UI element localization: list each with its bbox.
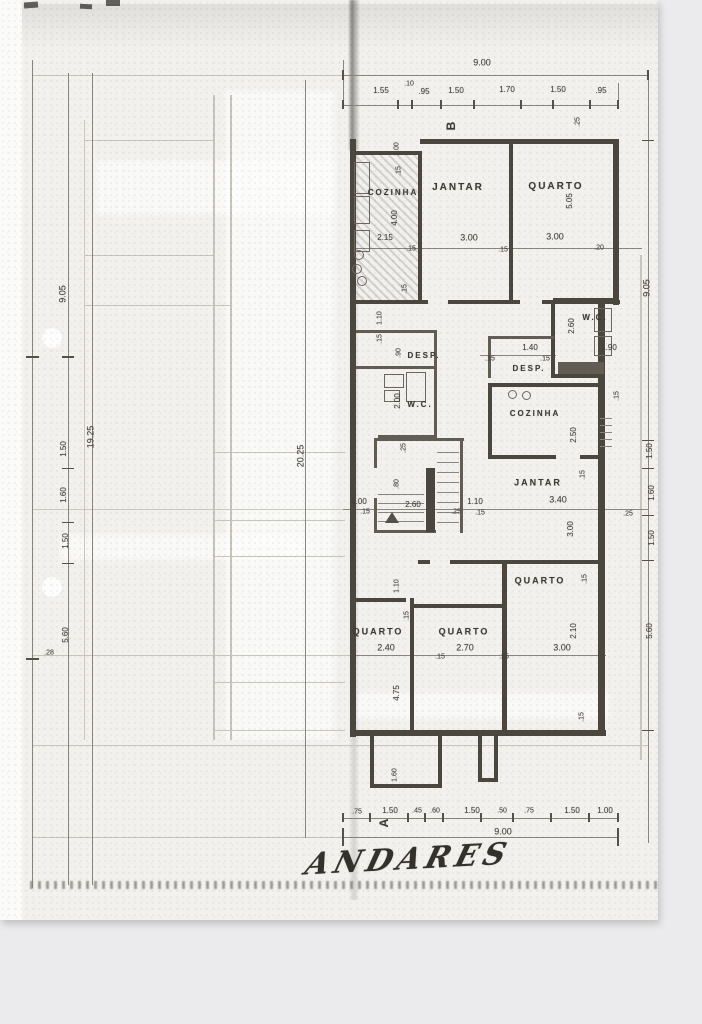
- tick-mark: [588, 813, 590, 822]
- dim-label: 5.60: [646, 623, 654, 639]
- scan-artifact: [22, 4, 658, 50]
- fixture: [437, 482, 459, 483]
- dim-label: 3.00: [553, 644, 571, 653]
- dim-label: .10: [404, 81, 414, 88]
- fixture: [600, 432, 612, 433]
- tick-mark: [642, 515, 654, 516]
- dim-label: 9.00: [473, 59, 491, 68]
- dim-label: .75: [524, 808, 534, 815]
- faint-line: [640, 255, 642, 760]
- wall-segment: [370, 784, 442, 788]
- dim-label: .15: [404, 611, 411, 621]
- dim-label: .25: [575, 117, 582, 127]
- kitchen-bench: [558, 362, 604, 374]
- stove-burner: [354, 250, 364, 260]
- tick-mark: [407, 813, 409, 822]
- dim-label: .15: [579, 712, 586, 722]
- tick-mark: [440, 100, 442, 109]
- hole-punch: [41, 327, 63, 349]
- dim-label: 9.00: [494, 828, 512, 837]
- dim-label: 2.10: [570, 623, 578, 639]
- dim-label: 1.50: [550, 86, 566, 94]
- bathtub: [406, 372, 426, 402]
- faint-line: [84, 255, 214, 256]
- tick-mark: [520, 100, 522, 109]
- fixture: [437, 452, 459, 453]
- wall-segment: [414, 604, 504, 608]
- kitchen-counter: [354, 230, 370, 252]
- fixture: [600, 418, 612, 419]
- dim-label: .15: [498, 247, 508, 254]
- dim-label: 1.55: [373, 87, 389, 95]
- dim-label: 2.60: [405, 501, 421, 509]
- wall-segment: [420, 139, 619, 144]
- faint-line: [32, 837, 343, 838]
- tick-mark: [26, 658, 39, 660]
- dim-label: .50: [497, 808, 507, 815]
- wall-segment: [551, 374, 605, 378]
- tick-mark: [342, 813, 344, 822]
- wall-segment: [438, 734, 442, 788]
- dim-label: .15: [402, 284, 409, 294]
- room-label-jantar-mid: JANTAR: [514, 479, 562, 488]
- dim-label: 19.25: [87, 426, 96, 449]
- wall-segment: [356, 366, 436, 369]
- wall-segment: [551, 302, 555, 378]
- dimension-line: [32, 60, 33, 888]
- room-label-jantar-top: JANTAR: [432, 183, 484, 193]
- faint-line: [32, 655, 350, 656]
- dim-label: .20: [594, 245, 604, 252]
- dim-label: .95: [595, 87, 606, 95]
- dim-label: .25: [401, 443, 408, 453]
- dim-label: 2.60: [568, 318, 576, 334]
- room-label-quarto-bottom-mid: QUARTO: [439, 628, 490, 637]
- dim-label: 1.50: [646, 443, 654, 459]
- dim-label: 1.50: [464, 807, 480, 815]
- dim-label: 1.50: [564, 807, 580, 815]
- dim-label: 2.15: [377, 234, 393, 242]
- tick-mark: [62, 522, 74, 523]
- tick-mark: [480, 813, 482, 822]
- fixture: [437, 522, 459, 523]
- tick-mark: [552, 100, 554, 109]
- tick-mark: [62, 468, 74, 469]
- scan-artifact: [106, 0, 120, 6]
- tick-mark: [642, 560, 654, 561]
- dim-label: 3.00: [567, 521, 575, 537]
- wall-segment: [488, 336, 554, 339]
- wall-segment: [478, 734, 482, 782]
- stove-burner: [508, 390, 517, 399]
- tick-mark: [617, 100, 619, 109]
- tick-mark: [442, 813, 444, 822]
- fixture: [426, 468, 435, 532]
- faint-line: [215, 452, 345, 453]
- dim-label: 20.25: [297, 445, 306, 468]
- faint-line: [32, 75, 343, 76]
- wall-segment: [613, 139, 619, 305]
- dim-label: 3.00: [460, 234, 478, 243]
- faint-line: [230, 95, 232, 740]
- tick-mark: [642, 468, 654, 469]
- stair-direction-arrow: [385, 512, 399, 523]
- wall-segment: [378, 435, 437, 438]
- wall-segment: [356, 330, 436, 333]
- wall-segment: [434, 330, 437, 438]
- dim-label: 4.75: [393, 685, 401, 701]
- dim-label: .15: [475, 510, 485, 517]
- dim-label: 1.90: [601, 344, 617, 352]
- wall-segment: [350, 139, 356, 737]
- tick-mark: [62, 356, 74, 358]
- tick-mark: [26, 356, 39, 358]
- stove-burner: [352, 264, 362, 274]
- dim-label: 9.05: [643, 279, 652, 297]
- faint-line: [32, 509, 343, 510]
- dim-label: 1.60: [648, 485, 656, 501]
- dim-label: 2.70: [456, 644, 474, 653]
- fixture: [437, 492, 459, 493]
- dim-label: 3.40: [549, 496, 567, 505]
- dim-label: .60: [430, 808, 440, 815]
- dim-label: .15: [377, 334, 384, 344]
- scan-artifact: [95, 160, 335, 215]
- dim-label: 1.50: [448, 87, 464, 95]
- wall-segment: [556, 455, 580, 459]
- wall-segment: [494, 734, 498, 782]
- fixture: [378, 494, 424, 495]
- faint-line: [215, 520, 345, 521]
- dim-label: .15: [580, 470, 587, 480]
- dim-label: 1.50: [382, 807, 398, 815]
- wall-segment: [430, 560, 450, 564]
- room-label-quarto-top: QUARTO: [528, 182, 583, 192]
- dim-label: 1.10: [377, 311, 384, 325]
- wall-segment: [509, 139, 513, 304]
- dim-label: 2.40: [377, 644, 395, 653]
- faint-line: [213, 95, 215, 740]
- dim-label: .80: [394, 479, 401, 489]
- dim-label: .15: [406, 246, 416, 253]
- fixture: [437, 462, 459, 463]
- plan-title: ANDARES: [302, 839, 514, 880]
- dimension-line: [343, 75, 649, 76]
- section-marker-b: B: [445, 122, 457, 131]
- scan-artifact: [30, 881, 658, 889]
- tick-mark: [642, 140, 654, 141]
- dim-label: .15: [485, 356, 495, 363]
- wall-segment: [488, 455, 605, 459]
- dimension-line: [92, 73, 93, 885]
- dimension-line: [68, 73, 69, 885]
- tick-mark: [411, 100, 413, 109]
- faint-line: [215, 682, 345, 683]
- dim-label: 9.05: [59, 285, 68, 303]
- fixture: [437, 502, 459, 503]
- faint-line: [84, 305, 230, 306]
- wall-segment: [478, 778, 498, 782]
- dim-label: .15: [614, 391, 621, 401]
- scanned-floor-plan-screenshot: 9.001.55.10.951.501.701.50.95B.25COZINHA…: [0, 0, 702, 1024]
- dim-label: 1.50: [60, 441, 68, 457]
- dim-label: .95: [418, 88, 429, 96]
- wall-segment: [374, 438, 464, 441]
- dim-label: .75: [352, 809, 362, 816]
- dimension-line: [350, 655, 606, 656]
- fixture: [600, 439, 612, 440]
- wall-segment: [418, 151, 422, 304]
- stove-burner: [357, 276, 367, 286]
- wall-segment: [352, 598, 406, 602]
- dim-label: 5.05: [566, 193, 574, 209]
- section-marker-a: A: [378, 819, 390, 828]
- dim-label: .90: [396, 348, 403, 358]
- scan-artifact: [80, 4, 92, 10]
- room-label-quarto-right: QUARTO: [515, 577, 566, 586]
- dim-label: 1.50: [62, 533, 70, 549]
- dim-label: .15: [540, 356, 550, 363]
- dim-label: 1.10: [467, 498, 483, 506]
- room-label-cozinha-right: COZINHA: [510, 410, 560, 418]
- dim-label: 1.00: [394, 142, 401, 156]
- dim-label: 1.60: [60, 487, 68, 503]
- tick-mark: [473, 100, 475, 109]
- room-label-wc-left: W.C.: [407, 401, 432, 409]
- hole-punch: [41, 576, 63, 598]
- fixture: [437, 472, 459, 473]
- dim-label: .25: [451, 509, 461, 516]
- dim-label: .25: [623, 511, 633, 518]
- dim-label: .15: [435, 654, 445, 661]
- tick-mark: [397, 100, 399, 109]
- tick-mark: [424, 813, 426, 822]
- faint-line: [84, 140, 214, 141]
- fixture: [600, 446, 612, 447]
- dim-label: 1.60: [392, 768, 399, 782]
- dim-label: .25: [499, 654, 509, 661]
- tick-mark: [617, 813, 619, 822]
- dim-label: 1.40: [522, 344, 538, 352]
- wall-segment: [370, 734, 374, 788]
- room-label-desp-right: DESP.: [513, 365, 546, 373]
- kitchen-sink: [354, 196, 370, 224]
- tick-mark: [512, 813, 514, 822]
- wall-segment: [460, 438, 463, 533]
- scan-artifact: [0, 0, 22, 920]
- floor-plan-sheet: 9.001.55.10.951.501.701.50.95B.25COZINHA…: [0, 0, 658, 920]
- wall-segment: [488, 383, 605, 387]
- tick-mark: [617, 828, 619, 846]
- faint-line: [215, 730, 345, 731]
- tick-mark: [342, 100, 344, 109]
- wall-segment: [410, 598, 414, 732]
- dim-label: .15: [582, 574, 589, 584]
- dim-label: .28: [44, 650, 54, 657]
- tick-mark: [62, 563, 74, 564]
- tick-mark: [642, 730, 654, 731]
- fixture: [600, 425, 612, 426]
- tick-mark: [642, 440, 654, 441]
- wall-segment: [352, 151, 422, 155]
- dim-label: 2.50: [570, 427, 578, 443]
- wc-fixture: [384, 374, 404, 388]
- dim-label: 1.00: [351, 498, 367, 506]
- tick-mark: [550, 813, 552, 822]
- dim-label: 1.00: [597, 807, 613, 815]
- wall-segment: [502, 564, 507, 732]
- dim-label: 4.00: [391, 210, 399, 226]
- tick-mark: [369, 813, 371, 822]
- dim-label: 1.10: [394, 579, 401, 593]
- dim-label: .15: [360, 509, 370, 516]
- room-label-wc-right: W.C.: [582, 314, 607, 322]
- dim-label: 3.00: [546, 233, 564, 242]
- wall-segment: [350, 300, 620, 304]
- wall-segment: [520, 300, 542, 304]
- tick-mark: [589, 100, 591, 109]
- room-label-cozinha-top: COZINHA: [368, 189, 418, 197]
- faint-line: [32, 745, 648, 746]
- dim-label: 2.00: [394, 393, 402, 409]
- scan-artifact: [24, 2, 38, 9]
- dim-label: 5.60: [62, 627, 70, 643]
- dim-label: 1.70: [499, 86, 515, 94]
- dim-label: .15: [396, 166, 403, 176]
- tick-mark: [647, 70, 649, 80]
- faint-line: [215, 556, 345, 557]
- wall-segment: [488, 385, 492, 459]
- tick-mark: [342, 70, 344, 80]
- wall-segment: [428, 300, 448, 304]
- room-label-desp-left: DESP.: [408, 352, 441, 360]
- wall-segment: [374, 468, 377, 498]
- dim-label: 1.50: [648, 530, 656, 546]
- dim-label: .45: [412, 808, 422, 815]
- dimension-line: [343, 105, 619, 106]
- stove-burner: [522, 391, 531, 400]
- room-label-quarto-bottom-left: QUARTO: [353, 628, 404, 637]
- tick-mark: [342, 828, 344, 846]
